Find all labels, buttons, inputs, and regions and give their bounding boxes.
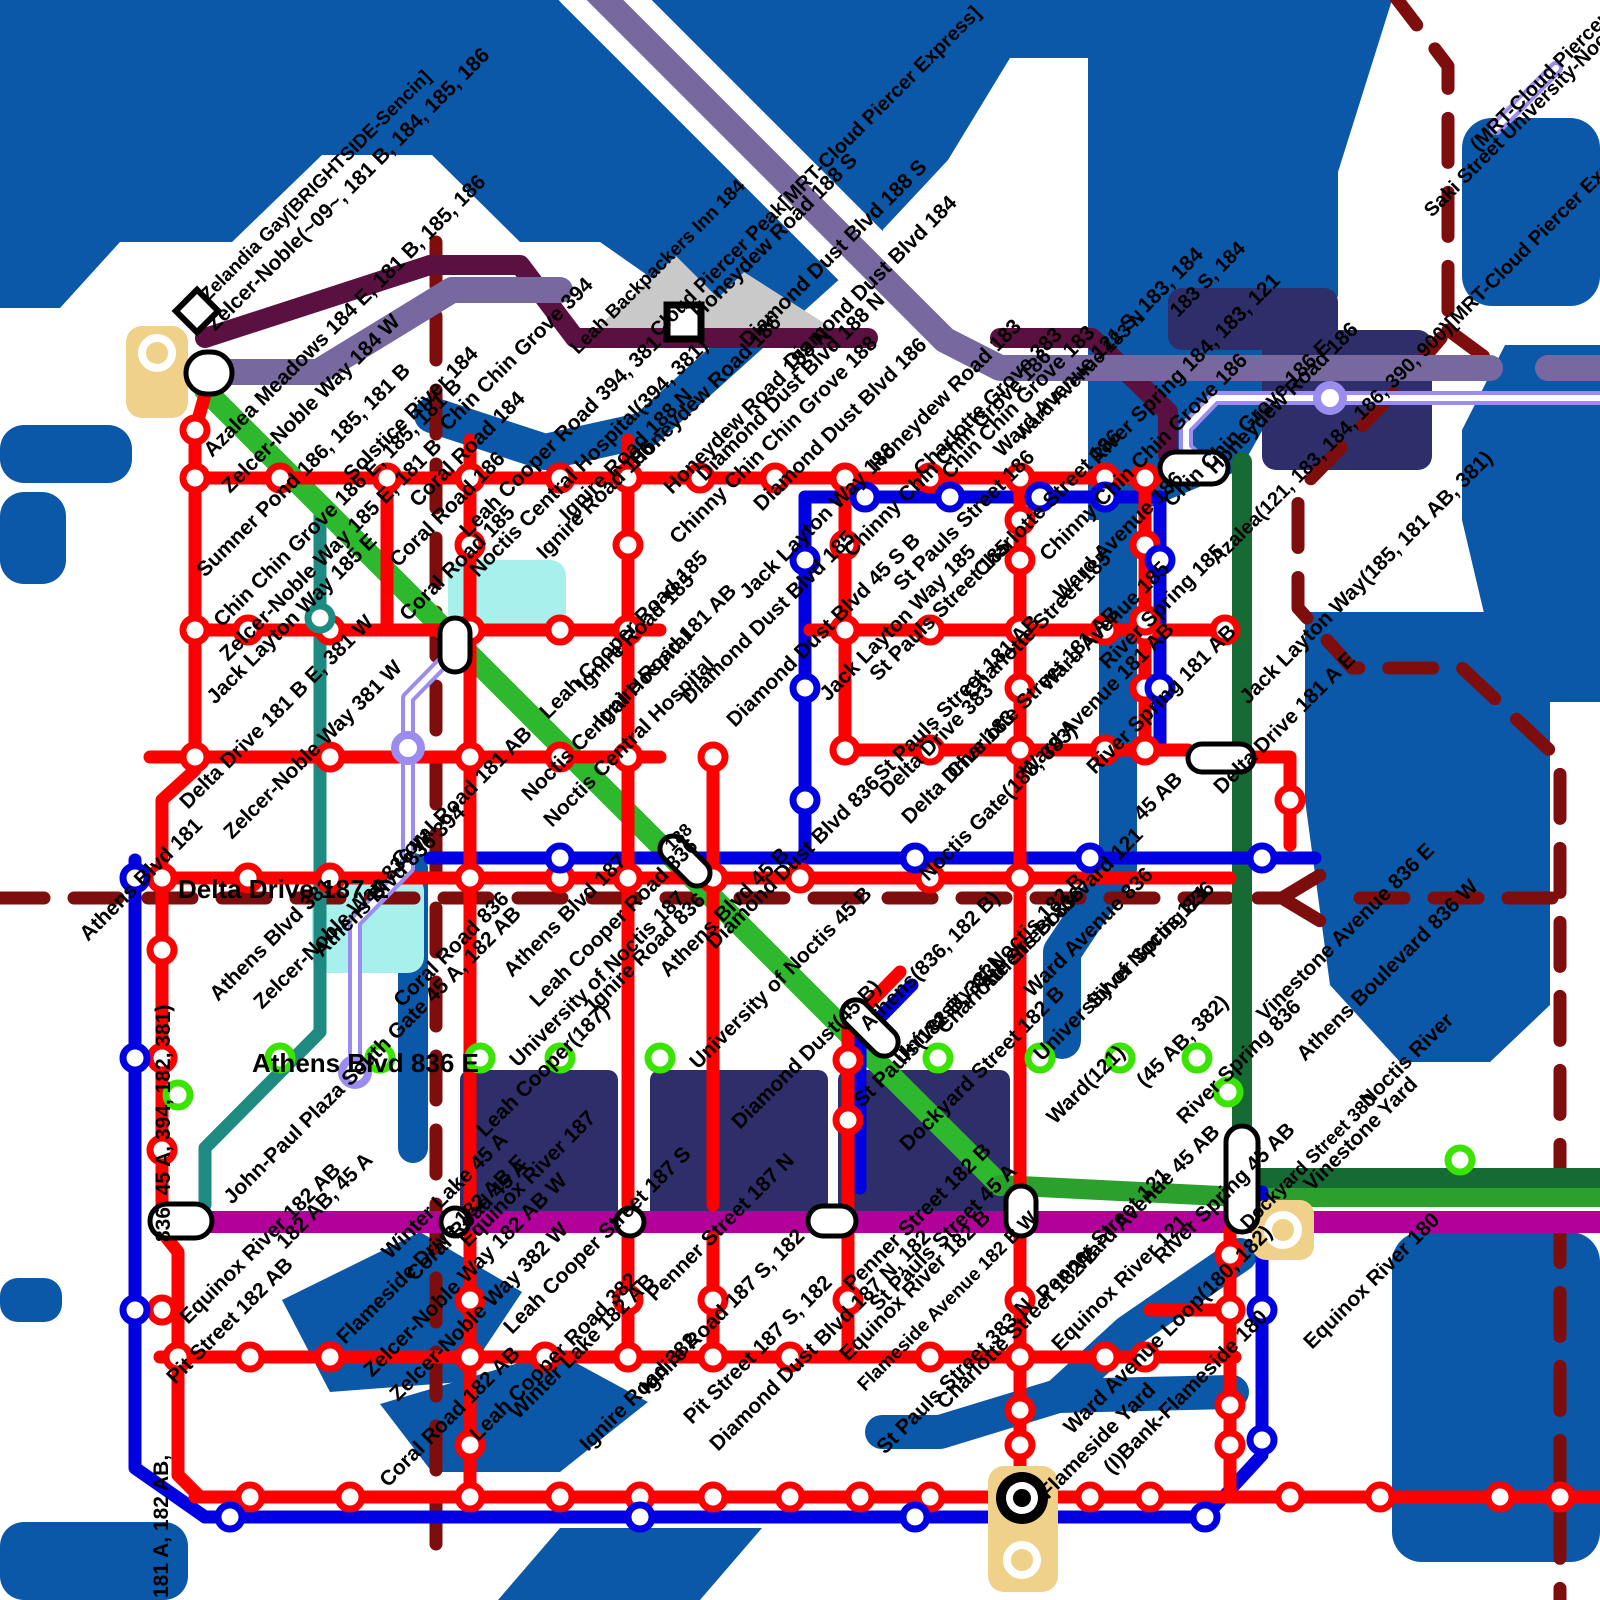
station-stop[interactable] <box>1488 1485 1512 1509</box>
station-stop[interactable] <box>1368 1485 1392 1509</box>
station-stop[interactable] <box>1218 1298 1242 1322</box>
station-stop[interactable] <box>183 745 207 769</box>
station-stop[interactable] <box>548 618 572 642</box>
station-stop[interactable] <box>848 1485 872 1509</box>
station-stop[interactable] <box>616 533 640 557</box>
station-stop[interactable] <box>903 1505 927 1529</box>
map-label: 181 A, 182 AB, <box>150 1455 173 1598</box>
station-stop[interactable] <box>793 788 817 812</box>
interchange-station[interactable] <box>186 352 232 394</box>
water-body <box>1392 1232 1600 1562</box>
station-stop[interactable] <box>628 1505 652 1529</box>
station-stop[interactable] <box>1250 1428 1274 1452</box>
station-stop[interactable] <box>1250 846 1274 870</box>
station-stop[interactable] <box>123 1046 147 1070</box>
station-stop[interactable] <box>1008 866 1032 890</box>
station-stop[interactable] <box>1078 1485 1102 1509</box>
station-stop[interactable] <box>150 938 174 962</box>
terminus-bullseye-icon <box>1013 1489 1031 1507</box>
station-stop[interactable] <box>938 485 962 509</box>
station-stop[interactable] <box>238 1345 262 1369</box>
station-stop[interactable] <box>918 1345 942 1369</box>
station-stop[interactable] <box>778 1485 802 1509</box>
mrt-station[interactable] <box>395 735 421 761</box>
transit-map-canvas: Zelandia Gay[BRIGHTSIDE-Sencin]Zelcer-No… <box>0 0 1600 1600</box>
station-stop[interactable] <box>701 745 725 769</box>
station-stop[interactable] <box>701 1345 725 1369</box>
station-stop[interactable] <box>648 1046 672 1070</box>
interchange-station[interactable] <box>440 618 470 672</box>
map-label: 45 AB <box>1129 768 1187 826</box>
station-stop[interactable] <box>218 1505 242 1529</box>
station-stop[interactable] <box>1278 788 1302 812</box>
station-stop[interactable] <box>183 618 207 642</box>
station-stop[interactable] <box>548 846 572 870</box>
station-stop[interactable] <box>548 1485 572 1509</box>
station-stop[interactable] <box>701 1485 725 1509</box>
station-stop[interactable] <box>1133 738 1157 762</box>
station-stop[interactable] <box>238 1485 262 1509</box>
water-body <box>498 1528 762 1600</box>
station-stop[interactable] <box>183 466 207 490</box>
water-body <box>0 492 66 584</box>
station-stop[interactable] <box>1138 1485 1162 1509</box>
station-stop[interactable] <box>150 1298 174 1322</box>
interchange-station[interactable] <box>808 1206 856 1236</box>
station-stop[interactable] <box>458 866 482 890</box>
station-stop[interactable] <box>1093 1345 1117 1369</box>
station-stop[interactable] <box>458 1345 482 1369</box>
station-stop[interactable] <box>1218 1433 1242 1457</box>
station-stop[interactable] <box>836 1108 860 1132</box>
station-stop[interactable] <box>836 1048 860 1072</box>
station-stop[interactable] <box>318 1345 342 1369</box>
station-stop[interactable] <box>926 1046 950 1070</box>
station-stop[interactable] <box>183 418 207 442</box>
station-stop[interactable] <box>793 676 817 700</box>
station-stop[interactable] <box>1008 1433 1032 1457</box>
map-label: 836, 45 A, 394, 182, 381) <box>152 1005 175 1242</box>
water-body <box>0 1278 62 1322</box>
station-stop[interactable] <box>1548 1485 1572 1509</box>
transit-map: Zelandia Gay[BRIGHTSIDE-Sencin]Zelcer-No… <box>0 0 1600 1600</box>
station-stop[interactable] <box>1193 1505 1217 1529</box>
station-stop[interactable] <box>458 1485 482 1509</box>
station-stop[interactable] <box>338 1485 362 1509</box>
water-body <box>0 425 132 483</box>
station-stop[interactable] <box>1278 1485 1302 1509</box>
mrt-station[interactable] <box>1317 385 1343 411</box>
station-stop[interactable] <box>616 1345 640 1369</box>
station-stop[interactable] <box>1448 1148 1472 1172</box>
station-stop[interactable] <box>833 738 857 762</box>
station-stop[interactable] <box>1218 1393 1242 1417</box>
station-stop[interactable] <box>123 1298 147 1322</box>
station-stop[interactable] <box>1008 1398 1032 1422</box>
